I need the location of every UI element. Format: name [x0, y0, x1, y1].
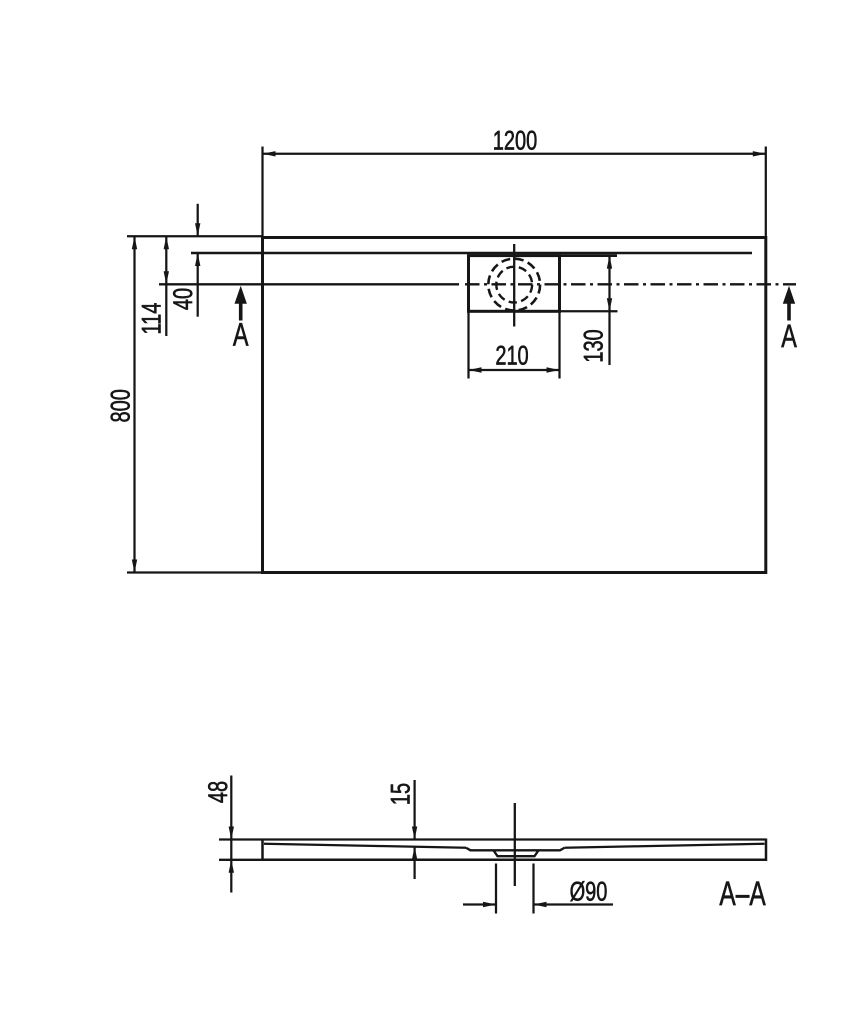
svg-text:800: 800: [106, 389, 136, 422]
svg-text:48: 48: [203, 781, 233, 803]
svg-text:114: 114: [137, 303, 167, 335]
svg-text:210: 210: [495, 341, 528, 371]
svg-text:A: A: [781, 318, 797, 354]
svg-text:40: 40: [168, 288, 198, 310]
svg-text:15: 15: [386, 783, 416, 805]
svg-text:1200: 1200: [493, 126, 537, 156]
svg-text:130: 130: [579, 329, 609, 362]
svg-text:A–A: A–A: [719, 875, 766, 913]
svg-text:Ø90: Ø90: [570, 877, 608, 907]
svg-text:A: A: [233, 317, 249, 353]
